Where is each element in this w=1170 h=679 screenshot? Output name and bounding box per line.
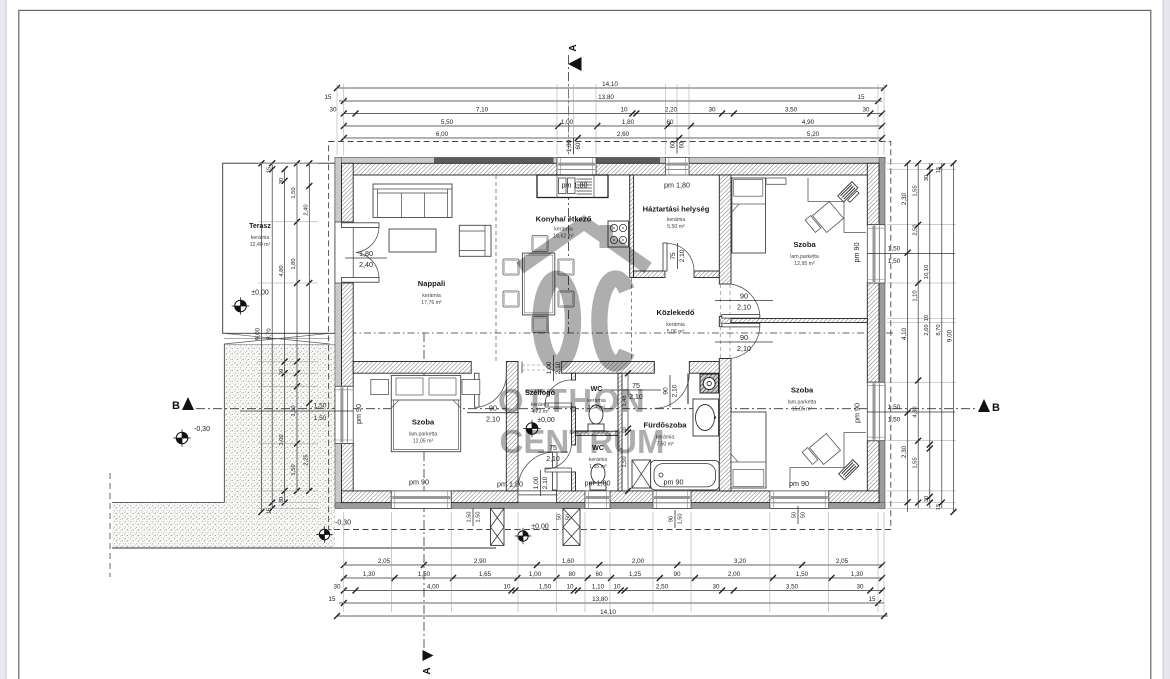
svg-text:7,10: 7,10 (476, 107, 489, 114)
svg-text:30: 30 (279, 497, 285, 503)
svg-text:pm 90: pm 90 (664, 478, 684, 487)
svg-text:2,10: 2,10 (737, 344, 751, 353)
svg-text:pm 90: pm 90 (354, 404, 363, 424)
svg-text:1,50: 1,50 (678, 514, 684, 525)
svg-text:-0,30: -0,30 (194, 426, 210, 433)
svg-text:90: 90 (489, 404, 497, 413)
svg-text:Szoba: Szoba (791, 386, 814, 395)
svg-text:pm 90: pm 90 (789, 479, 809, 488)
svg-text:15: 15 (324, 94, 332, 101)
svg-text:30: 30 (856, 584, 864, 591)
svg-text:1,50: 1,50 (314, 415, 327, 422)
svg-text:1,50: 1,50 (467, 512, 473, 523)
svg-text:2,40: 2,40 (359, 260, 373, 269)
svg-text:2,05: 2,05 (836, 558, 849, 565)
svg-text:60: 60 (679, 141, 686, 148)
svg-text:4,80: 4,80 (279, 265, 285, 276)
svg-text:50: 50 (801, 512, 807, 518)
svg-text:B: B (992, 402, 1000, 414)
svg-text:10: 10 (924, 315, 930, 321)
svg-text:13,80: 13,80 (592, 596, 608, 603)
svg-text:pm 1,80: pm 1,80 (562, 181, 588, 190)
svg-text:15,05 m²: 15,05 m² (792, 407, 813, 413)
svg-text:30: 30 (333, 584, 341, 591)
svg-text:1,10: 1,10 (912, 290, 918, 301)
svg-text:13,80: 13,80 (598, 94, 614, 101)
svg-text:1,50: 1,50 (314, 403, 327, 410)
svg-text:1,25: 1,25 (629, 571, 642, 578)
svg-text:1,50: 1,50 (888, 404, 901, 411)
svg-text:50: 50 (792, 512, 798, 518)
svg-text:2,30: 2,30 (901, 445, 908, 458)
svg-text:2,20: 2,20 (665, 107, 678, 114)
svg-text:15: 15 (936, 504, 942, 510)
svg-text:1,60: 1,60 (562, 558, 575, 565)
svg-text:1,50: 1,50 (418, 571, 431, 578)
svg-text:30: 30 (862, 107, 870, 114)
svg-text:90: 90 (669, 516, 675, 522)
svg-text:8,70: 8,70 (936, 324, 942, 335)
svg-text:5,20: 5,20 (807, 131, 820, 138)
svg-text:1,30: 1,30 (851, 571, 864, 578)
svg-text:2,10: 2,10 (542, 476, 549, 489)
svg-text:B: B (172, 400, 180, 412)
svg-text:2,30: 2,30 (901, 192, 908, 205)
svg-text:1,50: 1,50 (539, 584, 552, 591)
svg-text:Közlekedő: Közlekedő (657, 308, 695, 317)
svg-text:2,60: 2,60 (924, 324, 930, 335)
svg-text:30: 30 (279, 369, 285, 375)
svg-text:12,05 m²: 12,05 m² (413, 439, 434, 445)
svg-text:Szoba: Szoba (793, 240, 816, 249)
svg-text:50: 50 (557, 514, 563, 520)
svg-text:90: 90 (673, 571, 681, 578)
svg-text:15: 15 (328, 596, 336, 603)
svg-text:1,80: 1,80 (291, 258, 297, 269)
svg-text:3,50: 3,50 (785, 107, 798, 114)
svg-text:17,76 m²: 17,76 m² (421, 300, 442, 306)
svg-text:60: 60 (670, 141, 677, 148)
svg-text:lam.parketta: lam.parketta (790, 254, 819, 260)
svg-text:kerámia: kerámia (251, 235, 270, 241)
svg-text:1,50: 1,50 (796, 571, 809, 578)
svg-text:80: 80 (568, 571, 576, 578)
svg-text:60: 60 (595, 571, 603, 578)
svg-text:3,20: 3,20 (734, 558, 747, 565)
svg-text:pm 90: pm 90 (409, 478, 429, 487)
svg-text:5,50: 5,50 (441, 119, 454, 126)
svg-text:4,90: 4,90 (802, 119, 815, 126)
svg-text:15: 15 (857, 94, 865, 101)
svg-text:1,30: 1,30 (363, 571, 376, 578)
svg-text:1,50: 1,50 (476, 512, 482, 523)
svg-text:1,00: 1,00 (561, 119, 574, 126)
svg-text:4,00: 4,00 (427, 584, 440, 591)
svg-text:9,00: 9,00 (947, 329, 954, 342)
svg-text:pm 1,80: pm 1,80 (497, 480, 523, 489)
svg-text:Terasz: Terasz (249, 223, 271, 230)
svg-text:10: 10 (613, 584, 621, 591)
svg-text:14,10: 14,10 (600, 609, 616, 616)
svg-text:1,55: 1,55 (912, 457, 918, 468)
svg-text:2,10: 2,10 (679, 249, 686, 262)
svg-text:1,50: 1,50 (291, 405, 297, 416)
svg-text:1,10: 1,10 (592, 584, 605, 591)
svg-text:4,10: 4,10 (901, 327, 908, 340)
svg-text:Háztartási helység: Háztartási helység (643, 205, 710, 214)
svg-text:2,90: 2,90 (474, 558, 487, 565)
svg-text:3,50: 3,50 (786, 584, 799, 591)
svg-text:1,80: 1,80 (622, 119, 635, 126)
svg-text:2,10: 2,10 (737, 303, 751, 312)
svg-text:2,40: 2,40 (304, 204, 310, 215)
svg-text:75: 75 (670, 252, 677, 260)
svg-text:kerámia: kerámia (667, 217, 686, 223)
svg-text:9,00: 9,00 (255, 327, 262, 340)
svg-text:1,80: 1,80 (359, 249, 373, 258)
svg-text:OTTHON: OTTHON (498, 382, 646, 419)
svg-text:60: 60 (575, 142, 582, 149)
svg-text:30: 30 (279, 178, 285, 184)
svg-text:1,00: 1,00 (529, 571, 542, 578)
svg-text:-0,30: -0,30 (335, 520, 351, 527)
svg-text:15: 15 (266, 167, 272, 173)
svg-text:1,50: 1,50 (888, 258, 901, 265)
svg-text:30: 30 (329, 107, 337, 114)
svg-text:±0,00: ±0,00 (531, 524, 549, 531)
svg-text:2,10: 2,10 (672, 384, 679, 397)
svg-text:15: 15 (936, 167, 942, 173)
svg-text:15: 15 (266, 508, 272, 514)
svg-text:1,50: 1,50 (888, 417, 901, 424)
svg-text:50: 50 (566, 514, 572, 520)
svg-text:90: 90 (740, 333, 748, 342)
svg-text:10: 10 (503, 584, 511, 591)
svg-text:kerámia: kerámia (422, 293, 441, 299)
svg-text:60: 60 (666, 119, 674, 126)
svg-text:12,95 m²: 12,95 m² (794, 261, 815, 267)
svg-text:CENTRUM: CENTRUM (500, 423, 665, 460)
svg-text:2,00: 2,00 (728, 571, 741, 578)
svg-text:1,50: 1,50 (291, 464, 297, 475)
svg-text:1,50: 1,50 (888, 246, 901, 253)
svg-text:15: 15 (868, 596, 876, 603)
svg-text:pm 1,80: pm 1,80 (664, 181, 690, 190)
svg-text:30: 30 (708, 107, 716, 114)
svg-text:10: 10 (566, 584, 574, 591)
svg-text:A: A (422, 667, 433, 674)
svg-text:1,65: 1,65 (479, 571, 492, 578)
svg-text:30: 30 (924, 496, 930, 502)
svg-text:2,60: 2,60 (617, 131, 630, 138)
svg-text:1,00: 1,00 (533, 476, 540, 489)
svg-text:kerámia: kerámia (666, 322, 685, 328)
svg-text:4,30: 4,30 (912, 406, 918, 417)
svg-text:10: 10 (620, 107, 628, 114)
svg-text:90: 90 (740, 292, 748, 301)
svg-text:30: 30 (924, 175, 930, 181)
svg-text:1,65 m²: 1,65 m² (589, 464, 607, 470)
svg-text:lam.parketta: lam.parketta (409, 432, 438, 438)
svg-text:6,00: 6,00 (436, 131, 449, 138)
svg-text:3,00: 3,00 (279, 434, 285, 445)
svg-text:5,06 m²: 5,06 m² (667, 329, 685, 335)
svg-text:8,70: 8,70 (266, 328, 272, 339)
svg-text:90: 90 (663, 387, 670, 395)
svg-text:2,50: 2,50 (912, 224, 918, 235)
svg-text:Nappali: Nappali (418, 279, 445, 288)
svg-text:2,00: 2,00 (632, 558, 645, 565)
svg-text:2,50: 2,50 (656, 584, 669, 591)
svg-text:2,25: 2,25 (304, 454, 310, 465)
svg-text:14,10: 14,10 (602, 81, 618, 88)
svg-text:5,50 m²: 5,50 m² (667, 224, 685, 230)
svg-text:30: 30 (712, 584, 720, 591)
svg-text:lam.parketta: lam.parketta (788, 400, 817, 406)
svg-text:±0,00: ±0,00 (251, 290, 269, 297)
svg-text:pm 90: pm 90 (852, 243, 861, 263)
svg-text:2,05: 2,05 (378, 558, 391, 565)
svg-text:10,10: 10,10 (924, 265, 930, 280)
svg-text:1,00: 1,00 (566, 139, 573, 152)
svg-text:12,40 m²: 12,40 m² (250, 242, 271, 248)
svg-text:pm 90: pm 90 (853, 403, 862, 423)
svg-text:1,50: 1,50 (291, 187, 297, 198)
svg-text:A: A (568, 44, 579, 51)
svg-text:Szoba: Szoba (412, 418, 435, 427)
svg-text:1,55: 1,55 (912, 185, 918, 196)
svg-text:pm 1,80: pm 1,80 (585, 479, 611, 488)
